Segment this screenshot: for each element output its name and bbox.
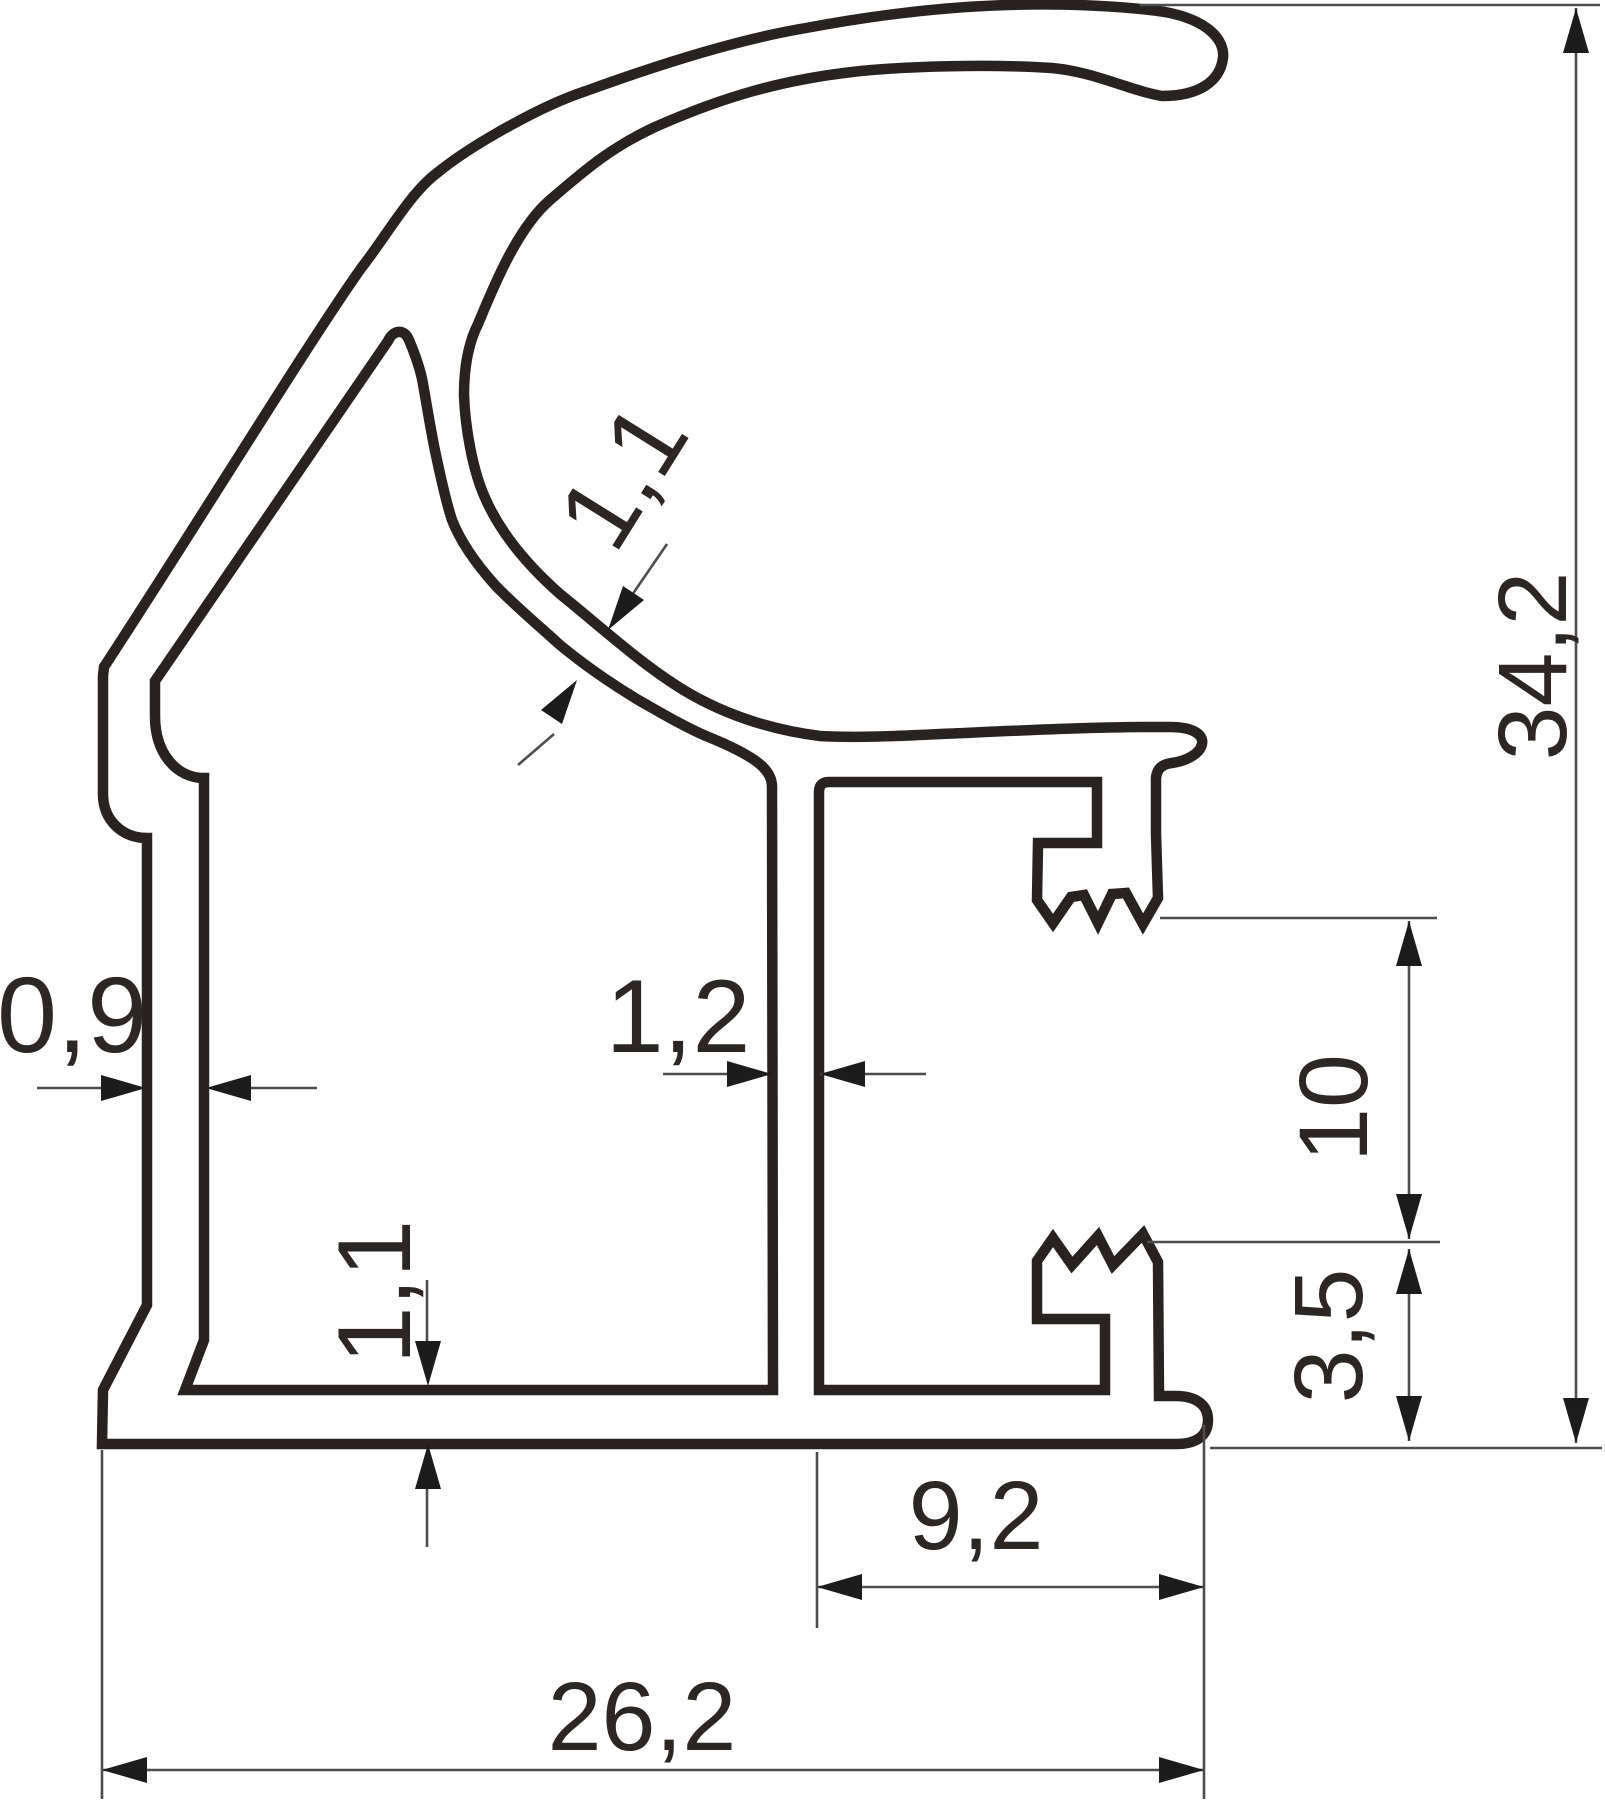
svg-text:34,2: 34,2 [1478,572,1587,761]
svg-text:9,2: 9,2 [909,1461,1044,1570]
svg-text:10: 10 [1279,1054,1388,1162]
svg-text:26,2: 26,2 [548,1662,737,1771]
svg-text:0,9: 0,9 [0,954,147,1075]
svg-text:1,1: 1,1 [317,1220,433,1365]
svg-text:1,2: 1,2 [606,959,751,1075]
svg-text:3,5: 3,5 [1274,1269,1383,1404]
